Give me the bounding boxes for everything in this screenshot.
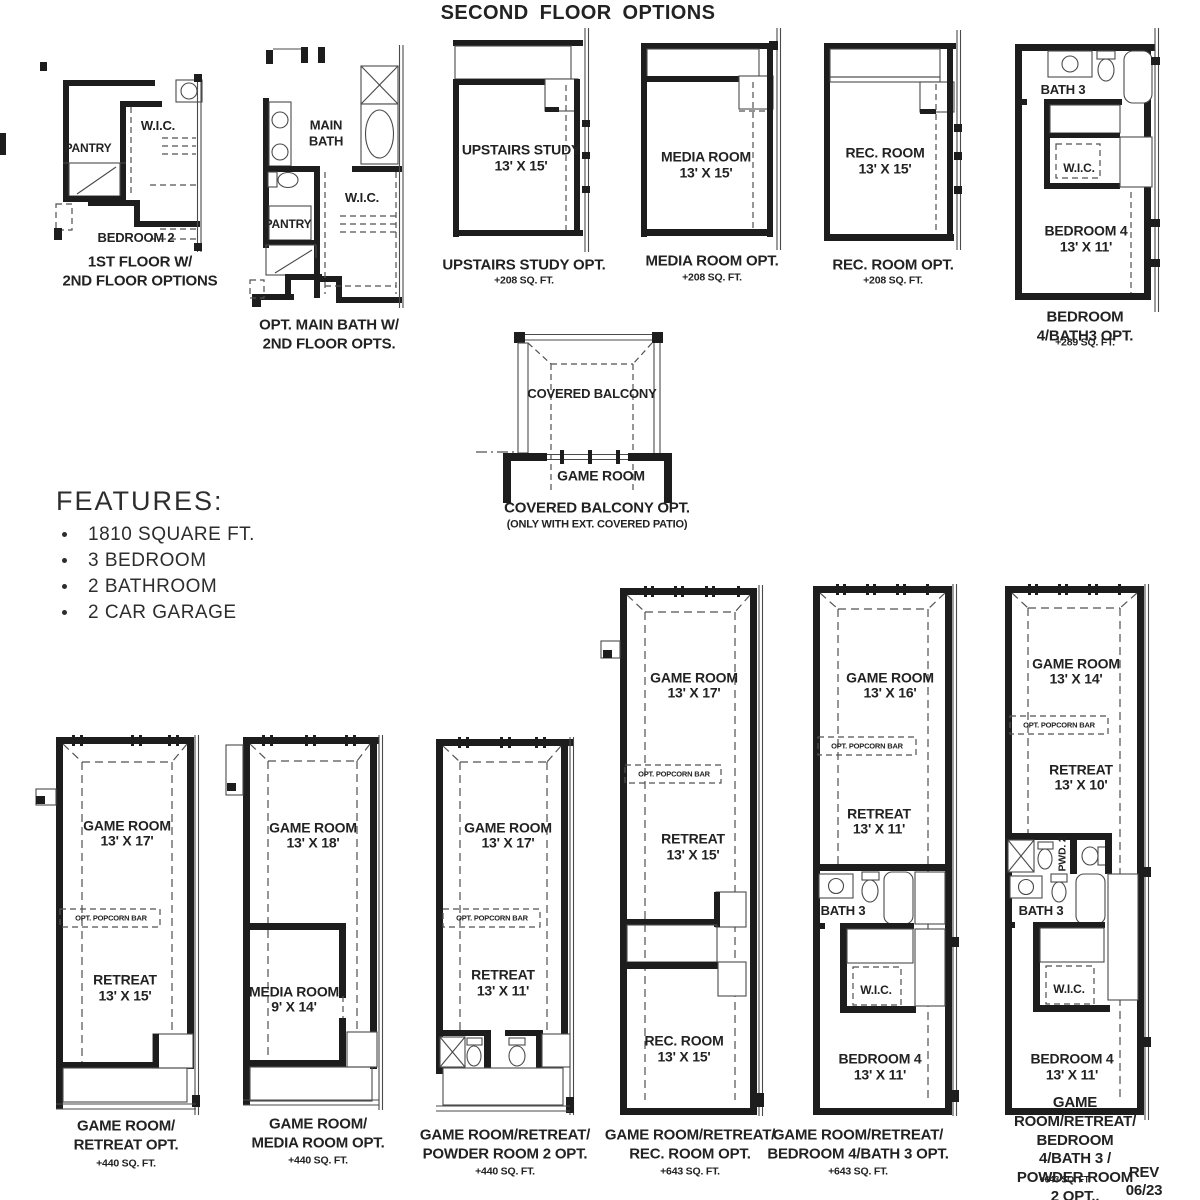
plan-e-caption: REC. ROOM OPT. xyxy=(832,257,953,276)
plan-j-rec-dims: 13' X 15' xyxy=(657,1049,710,1066)
balcony-game-room-label: GAME ROOM xyxy=(557,468,645,485)
page-title: SECOND FLOOR OPTIONS xyxy=(441,1,716,25)
plan-a-pantry-label: PANTRY xyxy=(65,141,112,155)
feature-item: 1810 SQUARE FT. xyxy=(88,524,255,546)
plan-e-sqft: +208 SQ. FT. xyxy=(863,275,923,288)
plan-b-pantry-label: PANTRY xyxy=(265,217,312,231)
balcony-label: COVERED BALCONY xyxy=(527,386,656,402)
balcony-caption: COVERED BALCONY OPT. xyxy=(504,500,690,519)
plan-k-bed4-dims: 13' X 11' xyxy=(854,1067,906,1084)
plan-j-popcorn-label: OPT. POPCORN BAR xyxy=(638,770,710,779)
plan-f-sqft: +289 SQ. FT. xyxy=(1055,337,1115,350)
plan-h-game-dims: 13' X 18' xyxy=(286,835,339,852)
plan-c-caption: UPSTAIRS STUDY OPT. xyxy=(442,257,605,276)
feature-item: 2 BATHROOM xyxy=(88,576,217,598)
plan-main-bath-graphic xyxy=(250,45,403,308)
plan-media-room-graphic xyxy=(641,28,781,250)
plan-f-bedroom4-label: BEDROOM 4 xyxy=(1045,223,1128,240)
plan-g-retreat-label: RETREAT xyxy=(93,972,157,989)
plan-l-bed4-dims: 13' X 11' xyxy=(1046,1067,1098,1084)
plan-i-sqft: +440 SQ. FT. xyxy=(475,1166,535,1179)
bullet-icon xyxy=(62,532,67,537)
floorplan-canvas xyxy=(0,0,1200,1200)
plan-g-game-dims: 13' X 17' xyxy=(100,833,153,850)
plan-c-sqft: +208 SQ. FT. xyxy=(494,275,554,288)
plan-game-retreat-bed4-graphic xyxy=(813,584,959,1116)
plan-l-bath3-label: BATH 3 xyxy=(1019,903,1064,919)
plan-k-sqft: +643 SQ. FT. xyxy=(828,1166,888,1179)
plan-l-game-dims: 13' X 14' xyxy=(1049,671,1102,688)
plan-k-retreat-dims: 13' X 11' xyxy=(853,821,905,838)
plan-e-room-label: REC. ROOM xyxy=(845,145,924,162)
feature-item: 2 CAR GARAGE xyxy=(88,602,237,624)
plan-d-caption: MEDIA ROOM OPT. xyxy=(645,253,778,272)
plan-i-caption: GAME ROOM/RETREAT/ POWDER ROOM 2 OPT. xyxy=(420,1126,590,1164)
plan-j-caption: GAME ROOM/RETREAT/ REC. ROOM OPT. xyxy=(605,1126,775,1164)
balcony-note: (ONLY WITH EXT. COVERED PATIO) xyxy=(507,518,688,531)
plan-g-caption: GAME ROOM/ RETREAT OPT. xyxy=(74,1117,179,1155)
bullet-icon xyxy=(62,584,67,589)
plan-rec-room-graphic xyxy=(824,30,962,250)
plan-first-floor-graphic xyxy=(40,62,202,252)
plan-l-wic-label: W.I.C. xyxy=(1053,982,1084,996)
plan-l-popcorn-label: OPT. POPCORN BAR xyxy=(1023,721,1095,730)
plan-k-bed4-label: BEDROOM 4 xyxy=(839,1051,922,1068)
plan-a-caption: 1ST FLOOR W/ 2ND FLOOR OPTIONS xyxy=(63,253,218,291)
plan-j-sqft: +643 SQ. FT. xyxy=(660,1166,720,1179)
plan-f-bath3-label: BATH 3 xyxy=(1041,82,1086,98)
plan-l-pwd2-label: PWD. 2 xyxy=(1057,837,1070,872)
plan-i-retreat-dims: 13' X 11' xyxy=(477,983,529,1000)
plan-d-dims-label: 13' X 15' xyxy=(679,165,732,182)
plan-g-popcorn-label: OPT. POPCORN BAR xyxy=(75,914,147,923)
features-heading: FEATURES: xyxy=(56,486,224,517)
plan-h-sqft: +440 SQ. FT. xyxy=(288,1155,348,1168)
plan-a-bedroom2-label: BEDROOM 2 xyxy=(98,230,175,246)
plan-b-caption: OPT. MAIN BATH W/ 2ND FLOOR OPTS. xyxy=(259,316,399,354)
plan-d-sqft: +208 SQ. FT. xyxy=(682,272,742,285)
plan-b-wic-label: W.I.C. xyxy=(345,190,379,206)
plan-k-caption: GAME ROOM/RETREAT/ BEDROOM 4/BATH 3 OPT. xyxy=(767,1126,948,1164)
feature-item: 3 BEDROOM xyxy=(88,550,207,572)
plan-j-retreat-label: RETREAT xyxy=(661,831,725,848)
plan-j-rec-label: REC. ROOM xyxy=(644,1033,723,1050)
bullet-icon xyxy=(62,610,67,615)
plan-c-room-label: UPSTAIRS STUDY xyxy=(462,142,580,159)
plan-e-dims-label: 13' X 15' xyxy=(858,161,911,178)
plan-upstairs-study-graphic xyxy=(453,28,590,252)
plan-g-retreat-dims: 13' X 15' xyxy=(98,988,151,1005)
plan-h-caption: GAME ROOM/ MEDIA ROOM OPT. xyxy=(251,1115,384,1153)
plan-b-main-bath-label: MAIN BATH xyxy=(309,117,343,148)
plan-h-media-dims: 9' X 14' xyxy=(271,999,317,1016)
plan-f-wic-label: W.I.C. xyxy=(1063,161,1094,175)
floorplan-sheet: SECOND FLOOR OPTIONS PANTRY W.I.C. BEDRO… xyxy=(0,0,1200,1200)
bullet-icon xyxy=(62,558,67,563)
plan-k-popcorn-label: OPT. POPCORN BAR xyxy=(831,742,903,751)
revision-note: REV 06/23 (40SA) xyxy=(1116,1164,1172,1200)
plan-l-retreat-dims: 13' X 10' xyxy=(1054,777,1107,794)
plan-d-room-label: MEDIA ROOM xyxy=(661,149,751,166)
plan-game-retreat-graphic xyxy=(36,735,200,1115)
plan-i-game-dims: 13' X 17' xyxy=(481,835,534,852)
plan-l-bed4-label: BEDROOM 4 xyxy=(1031,1051,1114,1068)
plan-game-media-graphic xyxy=(226,735,383,1110)
plan-i-popcorn-label: OPT. POPCORN BAR xyxy=(456,914,528,923)
plan-a-wic-label: W.I.C. xyxy=(141,118,175,134)
plan-f-dims-label: 13' X 11' xyxy=(1060,239,1112,256)
plan-c-dims-label: 13' X 15' xyxy=(494,158,547,175)
plan-g-sqft: +440 SQ. FT. xyxy=(96,1158,156,1171)
plan-j-game-dims: 13' X 17' xyxy=(667,685,720,702)
plan-j-retreat-dims: 13' X 15' xyxy=(666,847,719,864)
plan-i-retreat-label: RETREAT xyxy=(471,967,535,984)
plan-l-sqft: +643 SQ. FT. xyxy=(1040,1175,1091,1186)
plan-k-bath3-label: BATH 3 xyxy=(821,903,866,919)
plan-k-wic-label: W.I.C. xyxy=(860,983,891,997)
plan-game-retreat-powder-graphic xyxy=(436,737,574,1115)
plan-k-game-dims: 13' X 16' xyxy=(863,685,916,702)
